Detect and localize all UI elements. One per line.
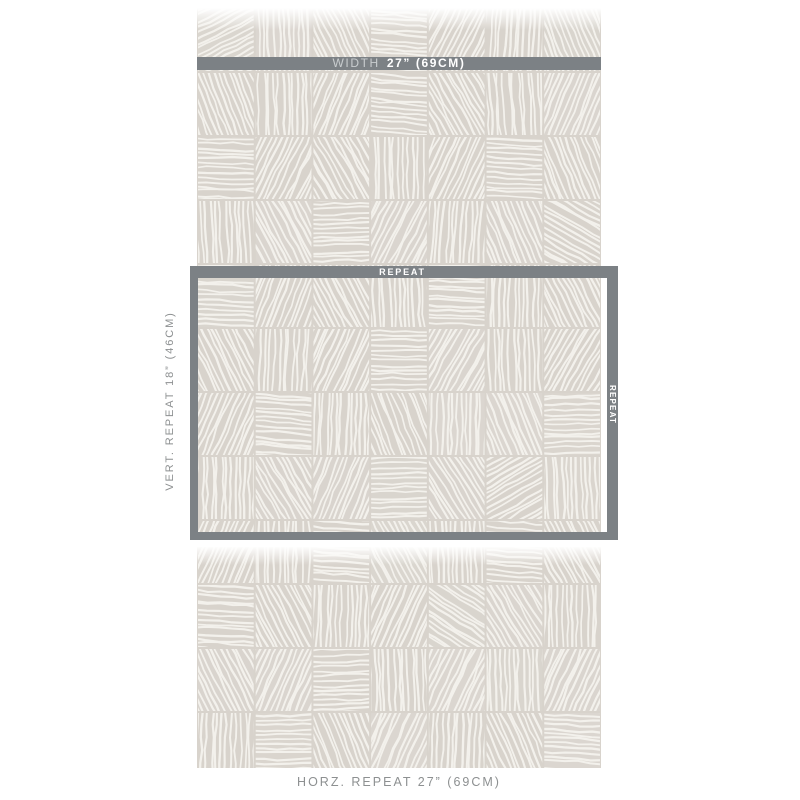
product-measurement-diagram: WIDTH 27” (69CM) REPEAT REPEAT VERT. REP… (0, 0, 800, 800)
swatch-top-fade (197, 8, 601, 30)
repeat-box-top-label: REPEAT (198, 266, 607, 278)
width-value: 27” (69CM) (387, 57, 466, 70)
gap-below-repeat-box (190, 540, 618, 547)
width-label: WIDTH (332, 57, 379, 70)
vertical-repeat-label: VERT. REPEAT 18” (46CM) (164, 307, 178, 495)
width-measure-bar: WIDTH 27” (69CM) (197, 57, 601, 70)
horizontal-repeat-label: HORZ. REPEAT 27” (69CM) (197, 775, 601, 789)
repeat-box: REPEAT REPEAT (190, 266, 618, 540)
repeat-box-right-label: REPEAT (607, 278, 618, 532)
swatch-middle-fade (197, 547, 601, 565)
